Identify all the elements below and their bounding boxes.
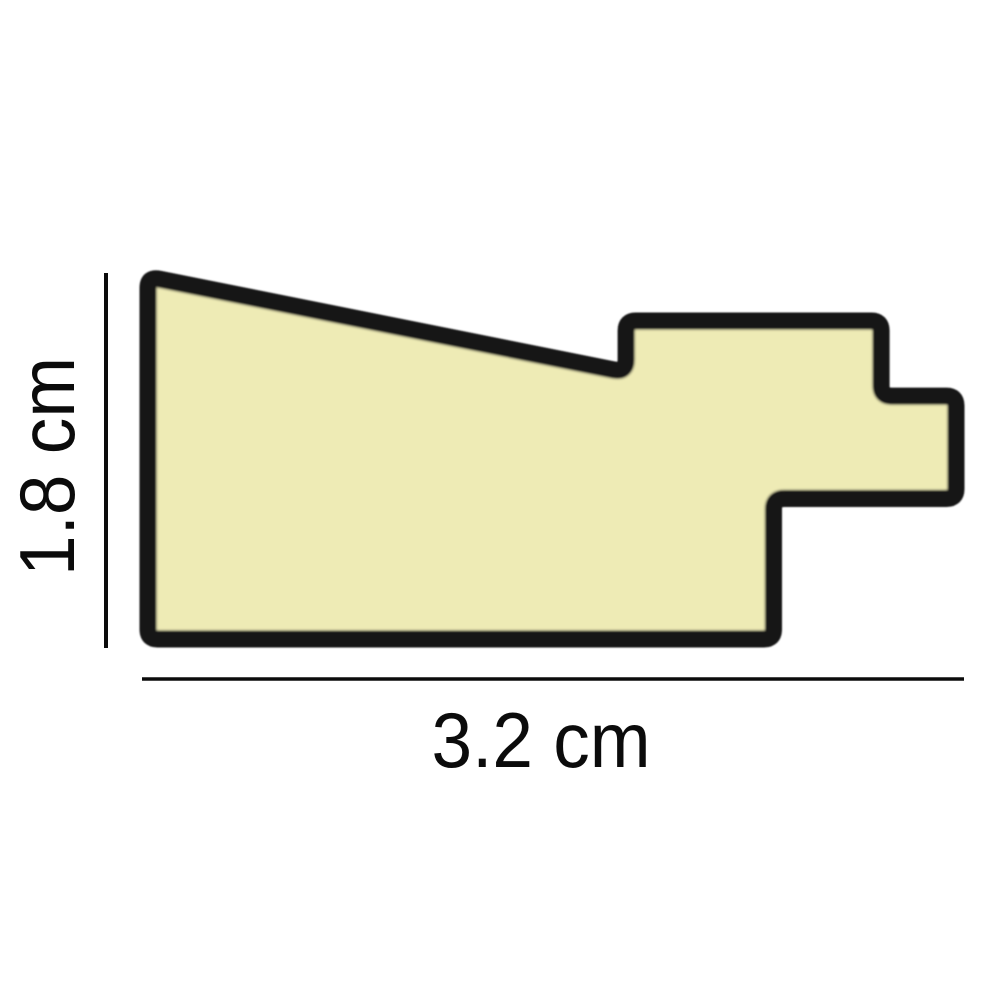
svg-text:3.2 cm: 3.2 cm — [431, 697, 650, 784]
svg-text:1.8 cm: 1.8 cm — [4, 357, 91, 576]
